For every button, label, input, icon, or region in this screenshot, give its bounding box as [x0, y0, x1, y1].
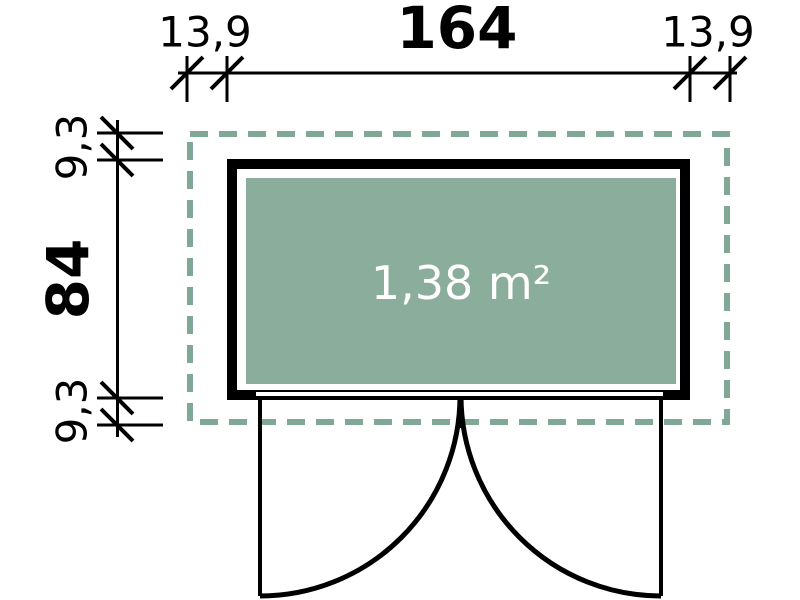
door-right-swing-arc: [461, 396, 661, 596]
dimension-chain-left: 9,3 84 9,3: [34, 114, 163, 445]
dim-left-bottom-overhang-label: 9,3: [48, 378, 97, 445]
dim-left-depth-label: 84: [34, 239, 102, 320]
dim-left-top-overhang-label: 9,3: [48, 114, 97, 181]
area-label: 1,38 m²: [371, 256, 551, 310]
floor-plan-drawing: 1,38 m² 13,9 164 13,9: [0, 0, 800, 600]
dimension-chain-top: 13,9 164 13,9: [158, 0, 755, 102]
door-threshold: [256, 392, 663, 396]
dim-top-right-overhang-label: 13,9: [661, 8, 755, 57]
floor-plan-svg: 1,38 m² 13,9 164 13,9: [0, 0, 800, 600]
door-left-swing-arc: [260, 396, 460, 596]
dim-top-width-label: 164: [396, 0, 517, 62]
dim-top-left-overhang-label: 13,9: [158, 8, 252, 57]
